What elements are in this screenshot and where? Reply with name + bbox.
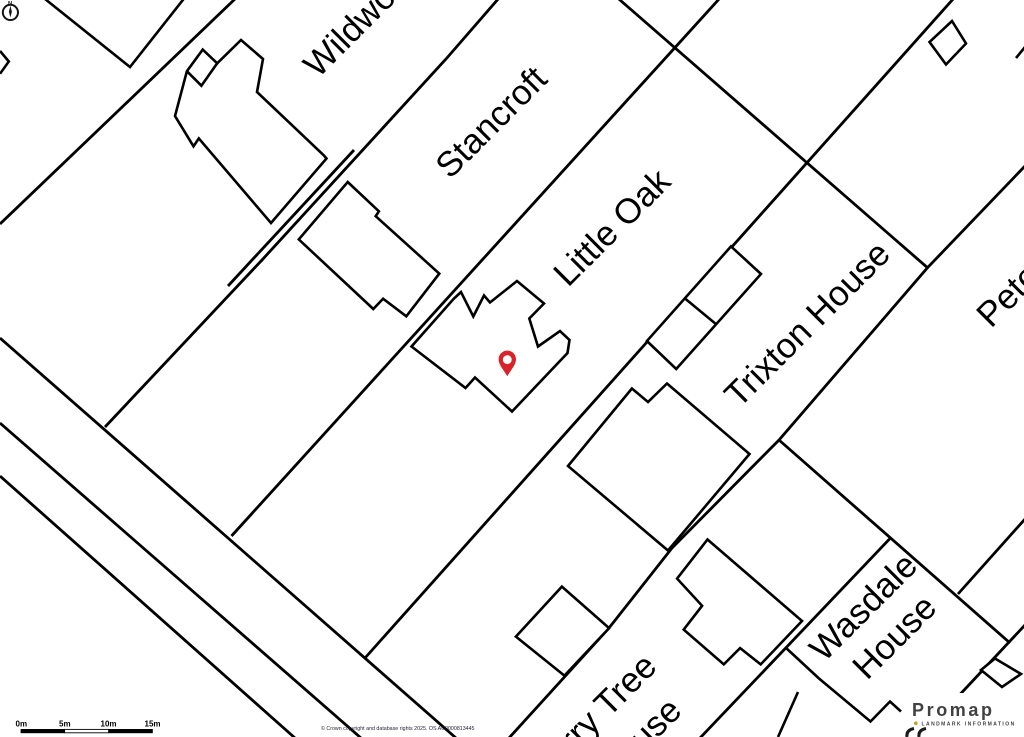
svg-text:10m: 10m [101, 720, 117, 729]
svg-text:5m: 5m [59, 720, 71, 729]
svg-text:LANDMARK INFORMATION: LANDMARK INFORMATION [922, 721, 1016, 727]
svg-text:0m: 0m [16, 720, 28, 729]
svg-text:Promap: Promap [912, 700, 995, 720]
svg-text:N: N [8, 1, 12, 7]
svg-text:15m: 15m [145, 720, 161, 729]
svg-text:© Crown copyright and database: © Crown copyright and database rights 20… [321, 725, 475, 732]
